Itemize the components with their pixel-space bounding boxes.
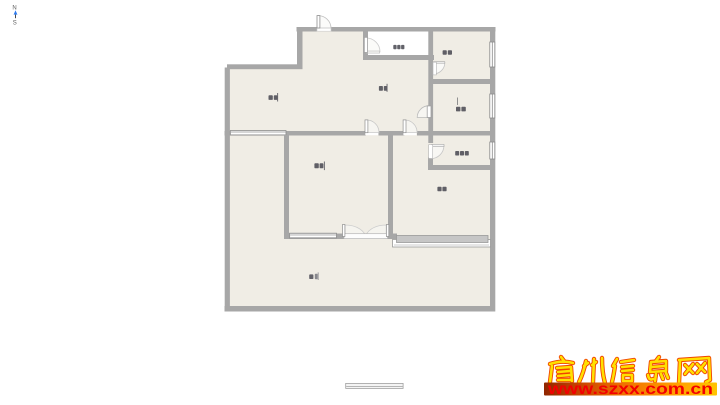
svg-text:www.szxx.com.cn: www.szxx.com.cn: [547, 381, 713, 398]
svg-text:S: S: [13, 20, 17, 26]
svg-text:N: N: [12, 6, 16, 12]
